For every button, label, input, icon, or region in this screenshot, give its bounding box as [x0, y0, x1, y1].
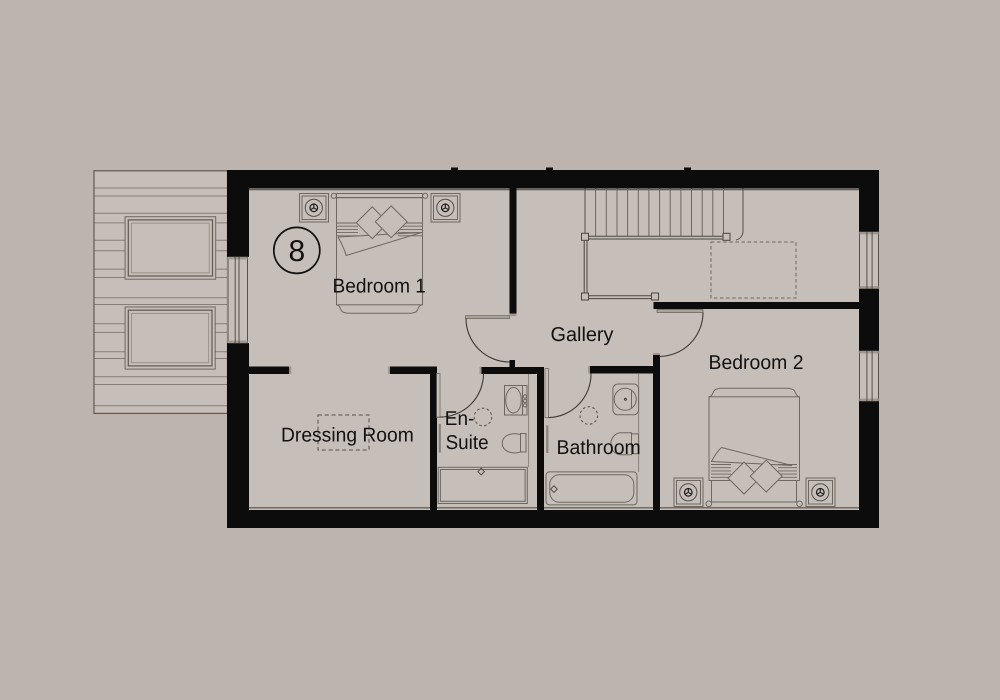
svg-text:Suite: Suite: [446, 432, 489, 454]
svg-text:Dressing Room: Dressing Room: [281, 424, 414, 446]
svg-text:Bedroom 2: Bedroom 2: [709, 352, 804, 374]
svg-text:Bedroom 1: Bedroom 1: [333, 276, 426, 298]
svg-text:En-: En-: [445, 408, 475, 430]
svg-text:8: 8: [288, 235, 305, 268]
svg-text:Bathroom: Bathroom: [557, 437, 641, 459]
svg-text:Gallery: Gallery: [551, 324, 614, 346]
